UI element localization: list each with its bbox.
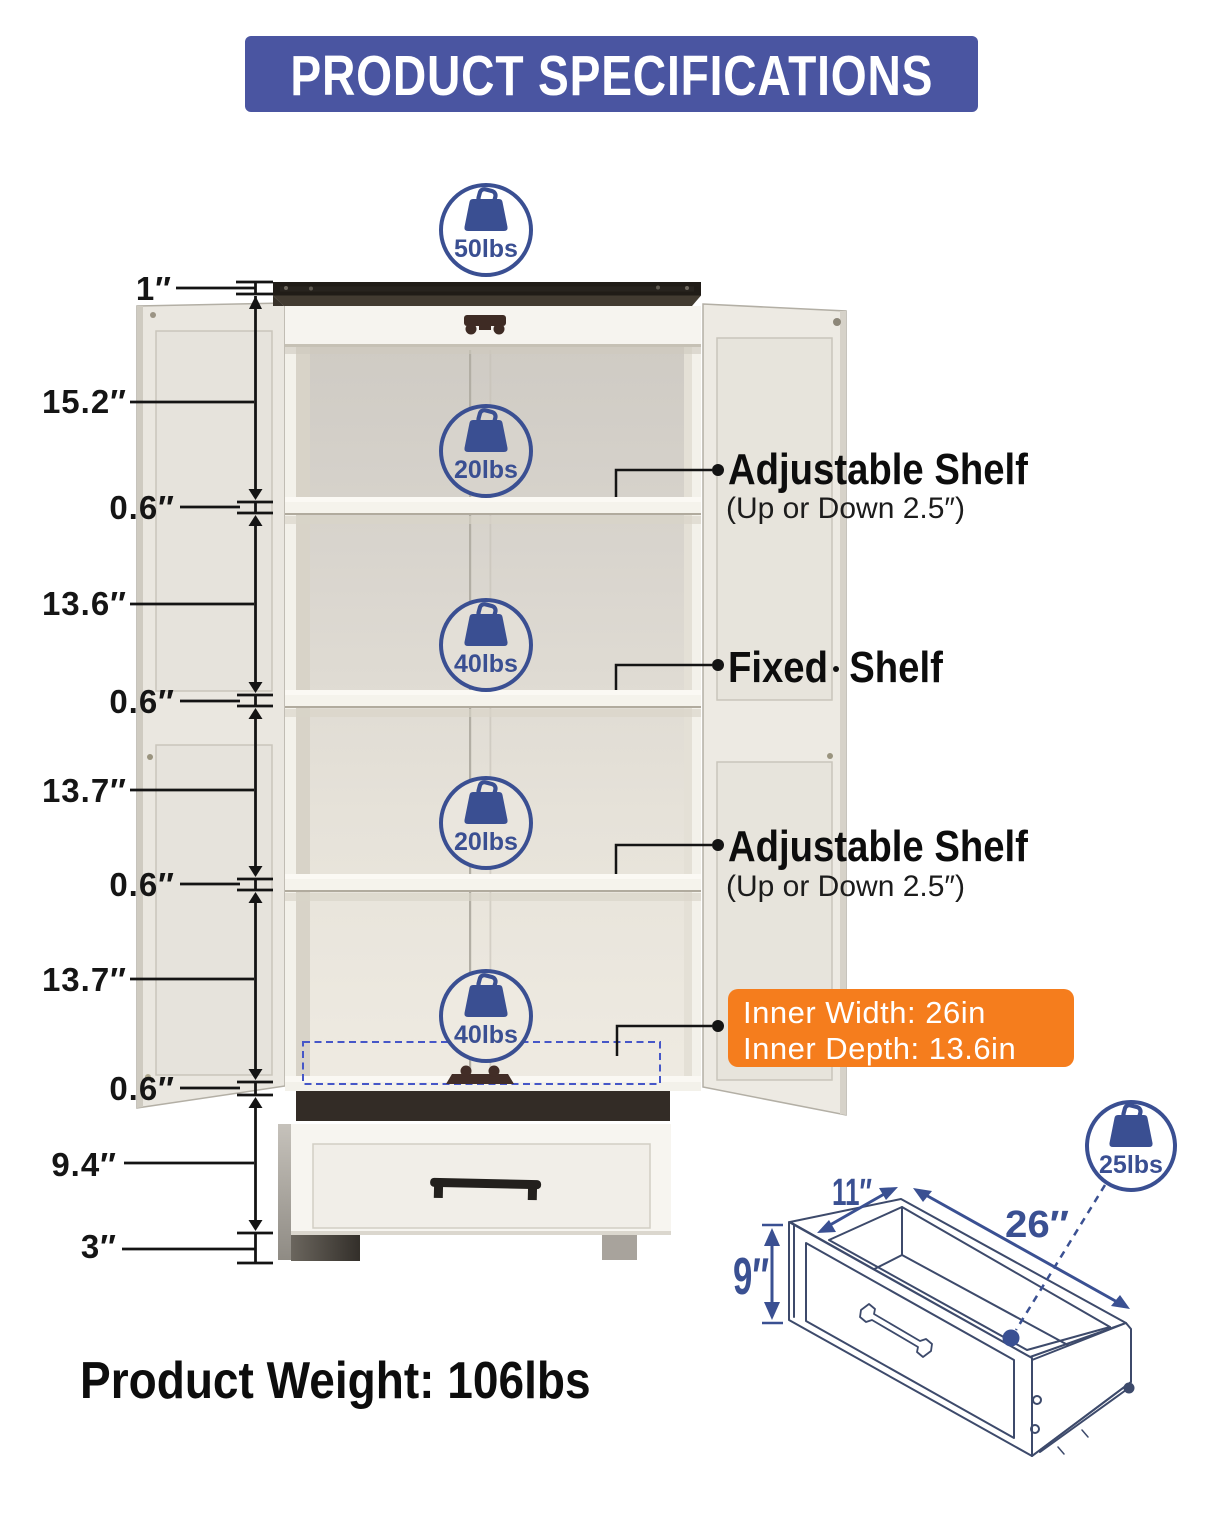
svg-text:9″: 9″ — [733, 1248, 769, 1306]
svg-text:50lbs: 50lbs — [454, 235, 518, 263]
svg-text:11″: 11″ — [832, 1172, 872, 1214]
svg-text:40lbs: 40lbs — [454, 650, 518, 678]
svg-text:26″: 26″ — [1005, 1204, 1069, 1246]
svg-text:20lbs: 20lbs — [454, 828, 518, 856]
svg-text:25lbs: 25lbs — [1099, 1151, 1163, 1179]
svg-text:40lbs: 40lbs — [454, 1021, 518, 1049]
svg-text:20lbs: 20lbs — [454, 456, 518, 484]
